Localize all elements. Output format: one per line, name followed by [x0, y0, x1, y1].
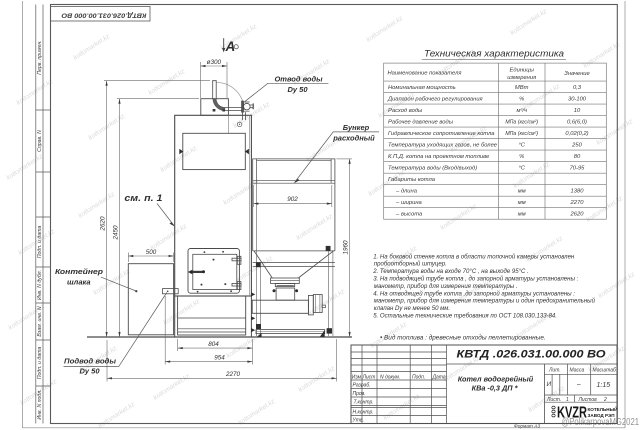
- svg-text:Наименование показателя: Наименование показателя: [388, 71, 462, 77]
- svg-text:Подп. и дата: Подп. и дата: [37, 347, 43, 380]
- svg-text:Формат А3: Формат А3: [514, 423, 541, 429]
- svg-text:К.П.Д. котла на проектном топл: К.П.Д. котла на проектном топливе: [388, 154, 490, 160]
- svg-text:Изм.Лист: Изм.Лист: [352, 374, 376, 380]
- svg-text:500: 500: [146, 249, 157, 256]
- svg-text:954: 954: [214, 354, 225, 361]
- svg-text:Подп. и дата: Подп. и дата: [37, 226, 43, 259]
- svg-text:1960: 1960: [342, 240, 349, 255]
- svg-text:kotlomarket.kz: kotlomarket.kz: [87, 113, 127, 142]
- svg-text:Лист.: Лист.: [546, 397, 561, 403]
- svg-text:Пров.: Пров.: [353, 391, 366, 397]
- svg-text:kotlomarket.kz: kotlomarket.kz: [582, 41, 622, 70]
- svg-text:Дата: Дата: [432, 374, 446, 380]
- svg-text:2: 2: [603, 397, 607, 403]
- svg-text:измерения: измерения: [507, 75, 536, 81]
- svg-text:МПа (кгс/см²): МПа (кгс/см²): [505, 131, 538, 137]
- svg-text:МПа (кгс/см²): МПа (кгс/см²): [505, 120, 538, 126]
- svg-text:1380: 1380: [571, 189, 585, 195]
- svg-text:0,3: 0,3: [573, 85, 582, 91]
- svg-text:kotlomarket.kz: kotlomarket.kz: [439, 203, 479, 232]
- svg-text:kotlomarket.kz: kotlomarket.kz: [595, 118, 635, 147]
- svg-text:пробоотборный штуцер.: пробоотборный штуцер.: [374, 261, 447, 268]
- svg-text:мм: мм: [518, 189, 526, 195]
- svg-text:Значение: Значение: [564, 71, 590, 77]
- svg-text:–: –: [576, 381, 581, 388]
- svg-text:Справ. N: Справ. N: [37, 130, 43, 152]
- svg-text:%: %: [519, 154, 524, 160]
- svg-text:70-95: 70-95: [570, 166, 586, 172]
- svg-text:см. п. 1: см. п. 1: [124, 193, 162, 204]
- svg-text:манометр, прибор для измерения: манометр, прибор для измерения температу…: [374, 298, 596, 305]
- svg-text:Рабочее давление воды: Рабочее давление воды: [388, 120, 454, 126]
- svg-text:Масса: Масса: [570, 368, 585, 374]
- svg-text:• Вид топлива : древесные от: • Вид топлива : древесные отходы пеллети…: [380, 333, 546, 341]
- svg-text:Взам. инв. N: Взам. инв. N: [37, 306, 43, 336]
- svg-text:шлака: шлака: [67, 278, 91, 287]
- svg-text:kotlomarket.kz: kotlomarket.kz: [77, 191, 117, 220]
- svg-text:ø300: ø300: [207, 59, 222, 66]
- svg-text:А: А: [225, 39, 236, 54]
- svg-text:Dy 50: Dy 50: [79, 367, 100, 376]
- svg-text:– высота: – высота: [395, 212, 423, 218]
- svg-text:2. Температура воды на входе: 2. Температура воды на входе 70°С , на в…: [372, 269, 529, 275]
- svg-text:kotlomarket.kz: kotlomarket.kz: [15, 78, 55, 107]
- svg-text:250: 250: [571, 143, 582, 149]
- svg-text:KVZR: KVZR: [557, 405, 587, 422]
- svg-text:kotlomarket.kz: kotlomarket.kz: [449, 125, 489, 154]
- svg-text:клапан Dу не менее 50 мм.: клапан Dу не менее 50 мм.: [374, 306, 450, 312]
- svg-text:902: 902: [287, 196, 298, 203]
- svg-text:Разраб.: Разраб.: [353, 383, 371, 389]
- svg-text:kotlomarket.kz: kotlomarket.kz: [147, 68, 187, 97]
- svg-text:kotlomarket.kz: kotlomarket.kz: [152, 373, 192, 402]
- svg-text:804: 804: [208, 341, 219, 348]
- svg-text:мм: мм: [518, 212, 526, 218]
- svg-text:kotlomarket.kz: kotlomarket.kz: [72, 33, 112, 62]
- svg-text:Бункер: Бункер: [343, 123, 370, 132]
- svg-text:N докум.: N докум.: [380, 374, 400, 380]
- svg-text:– длина: – длина: [395, 189, 418, 195]
- svg-text:kotlomarket.kz: kotlomarket.kz: [365, 15, 405, 44]
- svg-text:Номинальная мощность: Номинальная мощность: [388, 85, 456, 91]
- svg-text:Гидравлическое сопротивление к: Гидравлическое сопротивление котла: [388, 131, 495, 137]
- svg-text:2620: 2620: [570, 212, 585, 218]
- svg-text:2620: 2620: [100, 216, 107, 232]
- svg-text:Расход воды: Расход воды: [388, 108, 423, 114]
- svg-text:мм: мм: [518, 200, 526, 206]
- svg-text:– ширина: – ширина: [395, 200, 423, 206]
- svg-text:Единицы: Единицы: [510, 68, 535, 74]
- svg-text:2270: 2270: [570, 200, 585, 206]
- svg-text:Утв.: Утв.: [353, 418, 364, 424]
- svg-text:kotlomarket.kz: kotlomarket.kz: [295, 213, 335, 242]
- svg-text:КВа -0,3 ДП *: КВа -0,3 ДП *: [472, 384, 519, 393]
- svg-text:КВТД.026.031.00.000 ВО: КВТД.026.031.00.000 ВО: [61, 11, 146, 18]
- svg-text:расходный: расходный: [332, 134, 375, 143]
- svg-text:Dy 50: Dy 50: [287, 85, 308, 94]
- svg-text:10: 10: [574, 108, 581, 114]
- svg-text:Контейнер: Контейнер: [55, 267, 103, 276]
- svg-text:1:15: 1:15: [597, 382, 611, 389]
- svg-text:Температура воды (Вход/выход): Температура воды (Вход/выход): [388, 166, 477, 172]
- svg-text:kotlomarket.kz: kotlomarket.kz: [5, 153, 45, 182]
- svg-text:КОТЕЛЬНЫЙ: КОТЕЛЬНЫЙ: [588, 405, 618, 412]
- svg-text:1. На боковой стенке котла в: 1. На боковой стенке котла в области топ…: [373, 253, 575, 260]
- svg-text:0,6(6,0): 0,6(6,0): [567, 120, 587, 126]
- svg-text:30-100: 30-100: [568, 97, 587, 103]
- svg-text:Отвод воды: Отвод воды: [274, 75, 323, 84]
- svg-text:манометр, прибор для измерения: манометр, прибор для измерения температу…: [374, 284, 518, 290]
- svg-text:2270: 2270: [225, 371, 241, 378]
- svg-text:Инв. N подл.: Инв. N подл.: [37, 389, 43, 419]
- svg-text:Техническая характеристика: Техническая характеристика: [424, 49, 564, 59]
- svg-text:Подп.: Подп.: [412, 374, 425, 380]
- svg-text:ЗАВОД РЭП: ЗАВОД РЭП: [588, 413, 615, 418]
- svg-text:м³/ч: м³/ч: [516, 108, 527, 114]
- svg-text:°С: °С: [518, 166, 525, 172]
- svg-text:kotlomarket.kz: kotlomarket.kz: [149, 223, 189, 252]
- svg-text:И: И: [547, 381, 552, 388]
- svg-text:КВТД .026.031.00.000 ВО: КВТД .026.031.00.000 ВО: [457, 349, 606, 361]
- svg-text:0,02(0,2): 0,02(0,2): [565, 131, 588, 137]
- svg-text:kotlomarket.kz: kotlomarket.kz: [509, 8, 549, 37]
- svg-text:%: %: [519, 97, 524, 103]
- svg-text:Диапазон рабочего регулировани: Диапазон рабочего регулирования: [387, 97, 483, 103]
- svg-text:80: 80: [574, 154, 581, 160]
- svg-text:Подвод воды: Подвод воды: [64, 357, 117, 366]
- svg-text:Лит.: Лит.: [548, 368, 561, 374]
- svg-text:МВт: МВт: [515, 85, 529, 91]
- svg-text:3. На подводящей трубе котла: 3. На подводящей трубе котла , до запорн…: [373, 276, 578, 283]
- svg-text:Листов: Листов: [578, 397, 598, 403]
- svg-text:kotlomarket.kz: kotlomarket.kz: [162, 298, 202, 327]
- svg-text:5. Остальные технические треб: 5. Остальные технические требования по О…: [373, 314, 557, 320]
- svg-text:°С: °С: [518, 143, 525, 149]
- svg-text:Котел водогрейный: Котел водогрейный: [458, 375, 534, 384]
- svg-text:Н.контр.: Н.контр.: [353, 410, 374, 416]
- svg-text:Т.контр.: Т.контр.: [354, 400, 374, 406]
- svg-text:Инв. N дубл.: Инв. N дубл.: [37, 270, 43, 300]
- svg-text:4. На отводящей трубе котла ,: 4. На отводящей трубе котла ,до запорной…: [373, 290, 575, 297]
- svg-text:1: 1: [566, 397, 569, 403]
- svg-text:kotlomarket.kz: kotlomarket.kz: [237, 398, 277, 427]
- svg-text:kotlomarket.kz: kotlomarket.kz: [297, 365, 337, 394]
- svg-text:Перв. примен.: Перв. примен.: [37, 40, 43, 74]
- svg-text:kotlomarket.kz: kotlomarket.kz: [97, 401, 137, 430]
- svg-text:Масштаб: Масштаб: [593, 368, 617, 374]
- svg-text:Габариты котла: Габариты котла: [388, 177, 436, 183]
- svg-text:Температура уходящих газов, не: Температура уходящих газов, не более: [388, 143, 498, 149]
- svg-text:2450: 2450: [113, 225, 120, 241]
- svg-text:kotlomarket.kz: kotlomarket.kz: [222, 178, 262, 207]
